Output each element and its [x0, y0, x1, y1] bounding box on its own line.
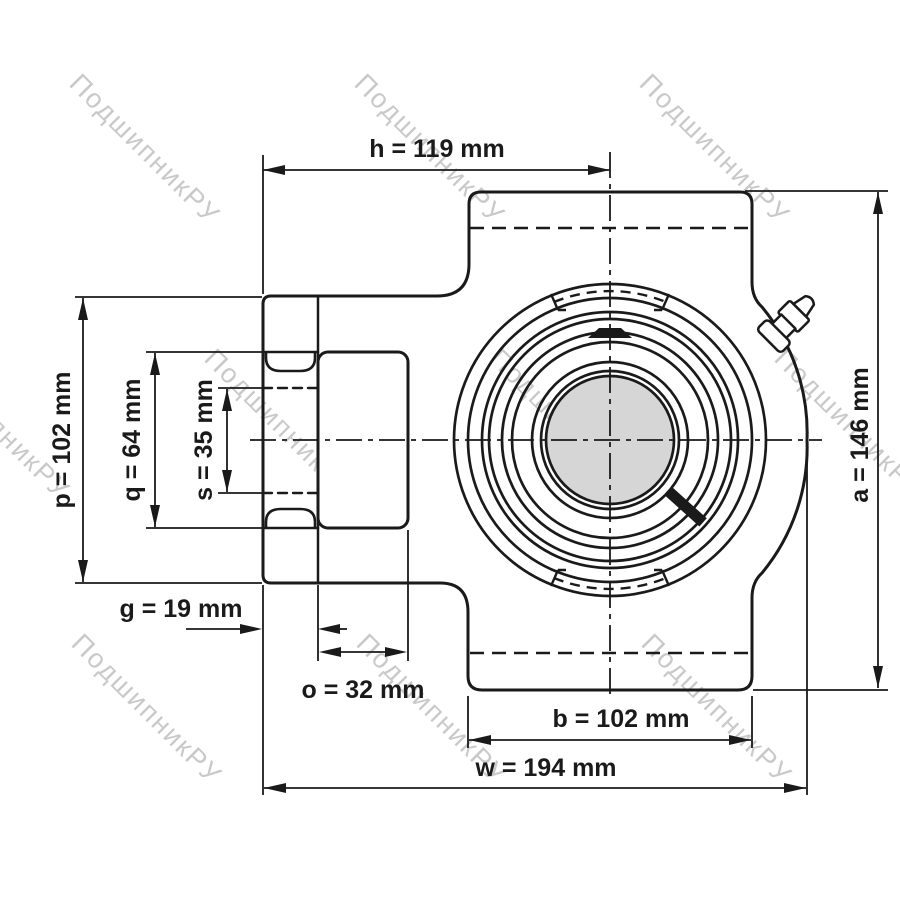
- label-w: w = 194 mm: [474, 754, 616, 782]
- label-b: b = 102 mm: [553, 705, 690, 733]
- label-o: o = 32 mm: [302, 676, 425, 704]
- label-h: h = 119 mm: [369, 135, 505, 163]
- watermark-text: ПодшипникРУ: [66, 628, 228, 790]
- label-q: q = 64 mm: [118, 379, 146, 502]
- watermark-text: ПодшипникРУ: [769, 343, 900, 505]
- label-a: a = 146 mm: [846, 367, 874, 503]
- watermark-text: ПодшипникРУ: [64, 68, 226, 230]
- label-g: g = 19 mm: [120, 595, 243, 623]
- label-s: s = 35 mm: [190, 379, 218, 501]
- technical-drawing-canvas: ПодшипникРУПодшипникРУПодшипникРУПодшипн…: [0, 0, 900, 900]
- grease-fitting-icon: [757, 287, 824, 354]
- label-p: p = 102 mm: [48, 372, 76, 509]
- set-screw: [665, 488, 707, 527]
- watermark-text: ПодшипникРУ: [634, 68, 796, 230]
- dimension-p: [75, 297, 262, 583]
